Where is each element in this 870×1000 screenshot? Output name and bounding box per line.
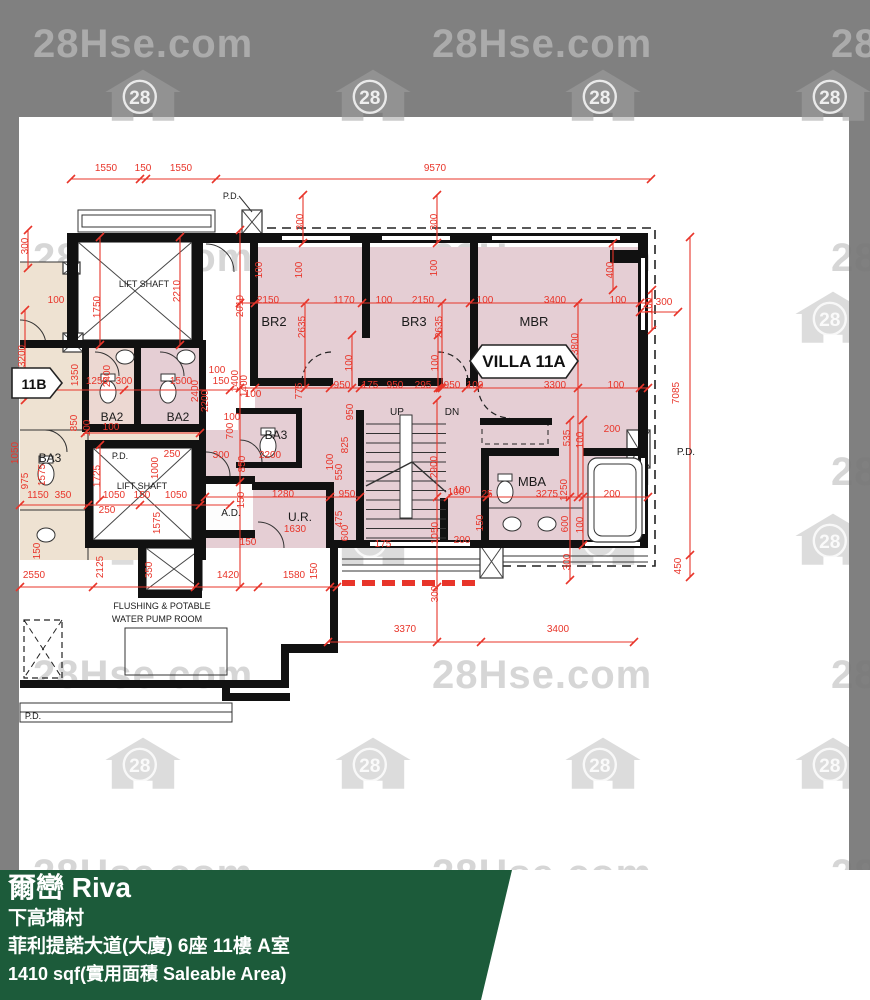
- dimension-label: 975: [20, 472, 31, 489]
- dimension-label: 550: [334, 463, 345, 480]
- dimension-label: 3370: [394, 624, 417, 635]
- dimension-label: 2550: [23, 570, 46, 581]
- dimension-label: 100: [429, 259, 440, 276]
- property-info-footer: 爾巒 Riva 下高埔村 菲利提諾大道(大廈) 6座 11樓 A室 1410 s…: [0, 870, 870, 1000]
- dimension-label: 100: [575, 516, 586, 533]
- room-label: UP: [390, 407, 404, 418]
- dimension-label: 3200: [17, 344, 28, 367]
- dimension-label: 100: [209, 365, 226, 376]
- district-name: 下高埔村: [8, 905, 290, 932]
- dimension-label: 1550: [95, 163, 118, 174]
- dimension-label: 1550: [170, 163, 193, 174]
- room-label: P.D.: [25, 711, 41, 721]
- dimension-label: 450: [673, 557, 684, 574]
- dimension-label: 300: [20, 237, 31, 254]
- room-label: WATER PUMP ROOM: [112, 614, 202, 624]
- dimension-label: 1050: [103, 490, 126, 501]
- dimension-label: 300: [295, 213, 306, 230]
- dimension-label: 3400: [544, 295, 567, 306]
- dimension-label: 100: [224, 412, 241, 423]
- dimension-label: 850: [237, 455, 248, 472]
- dimension-label: 300: [430, 585, 441, 602]
- dimension-label: 250: [99, 505, 116, 516]
- dimension-label: 300: [116, 376, 133, 387]
- dimension-label: 950: [387, 380, 404, 391]
- dimension-label: 300: [429, 213, 440, 230]
- dimension-label: 535: [562, 429, 573, 446]
- dimension-label: 400: [605, 261, 616, 278]
- dimension-label: 200: [454, 535, 471, 546]
- dimension-label: 100: [575, 431, 586, 448]
- room-label: MBA: [518, 474, 547, 489]
- room-label: P.D.: [112, 451, 128, 461]
- dimension-label: 150: [213, 376, 230, 387]
- dimension-label: 1050: [10, 441, 21, 464]
- dimension-label: 1420: [217, 570, 240, 581]
- dimension-label: 950: [339, 489, 356, 500]
- dimension-label: 1250: [559, 478, 570, 501]
- dimension-label: 700: [225, 422, 236, 439]
- dimension-label: 1150: [27, 490, 49, 501]
- room-label: BA3: [39, 451, 62, 465]
- dimension-label: 1000: [150, 456, 161, 479]
- dimension-label: 2010: [235, 294, 246, 317]
- dimension-label: 175: [362, 380, 379, 391]
- dimension-label: 9570: [424, 163, 447, 174]
- footer-text-block: 爾巒 Riva 下高埔村 菲利提諾大道(大廈) 6座 11樓 A室 1410 s…: [8, 871, 290, 987]
- dimension-label: 2125: [95, 555, 106, 578]
- dimension-label: 1350: [70, 363, 81, 386]
- dimension-label: 950: [334, 380, 351, 391]
- room-label: P.D.: [677, 447, 695, 458]
- dimension-label: 150: [134, 490, 151, 501]
- dimension-label: 3275: [536, 489, 559, 500]
- dimension-label: 7085: [671, 381, 682, 404]
- room-label: MBR: [520, 314, 549, 329]
- dimension-label: 150: [240, 537, 257, 548]
- dimension-label: 150: [135, 163, 152, 174]
- dimension-label: 100: [610, 295, 627, 306]
- dimension-label: 100: [644, 297, 655, 314]
- address-line: 菲利提諾大道(大廈) 6座 11樓 A室: [8, 932, 290, 961]
- dimension-label: 200: [604, 489, 621, 500]
- dimension-label: 25: [481, 489, 493, 500]
- dimension-label: 1250: [86, 376, 109, 387]
- room-label: FLUSHING & POTABLE: [113, 601, 210, 611]
- dimension-label: 150: [309, 562, 320, 579]
- dimension-label: 2635: [434, 315, 445, 338]
- dimension-label: 100: [454, 485, 471, 496]
- floor-plan-page: 28Hse.com28Hse.com28Hse.com28Hse.com28Hs…: [0, 0, 870, 1000]
- dimension-label: 100: [344, 354, 355, 371]
- dimension-label: 1580: [283, 570, 306, 581]
- dimension-label: 250: [164, 449, 181, 460]
- dimension-label: 1170: [333, 295, 355, 306]
- dimension-label: 825: [340, 436, 351, 453]
- dimension-label: 600: [340, 524, 351, 541]
- dimension-label: 1050: [430, 521, 441, 544]
- dimension-label: 350: [144, 561, 155, 578]
- room-label: DN: [445, 407, 459, 418]
- dimension-label: 100: [477, 295, 494, 306]
- dimension-label: 300: [213, 450, 230, 461]
- dimension-label: 150: [475, 514, 486, 531]
- dimension-label: 600: [560, 515, 571, 532]
- dimension-label: 100: [294, 261, 305, 278]
- dimension-label: 175: [375, 539, 392, 550]
- neighbor-banner-label: 11B: [22, 376, 47, 392]
- dimension-label: 1050: [165, 490, 188, 501]
- dimension-label: 1630: [284, 524, 307, 535]
- room-label: P.D.: [223, 191, 239, 201]
- room-label: LIFT SHAFT: [117, 481, 168, 491]
- dimension-label: 300: [656, 297, 673, 308]
- room-label: BA3: [265, 428, 288, 442]
- unit-banner-label: VILLA 11A: [482, 352, 565, 371]
- saleable-area: 1410 sqf(實用面積 Saleable Area): [8, 961, 290, 987]
- dimension-label: 150: [236, 491, 247, 508]
- dimension-label: 1575: [37, 463, 48, 486]
- room-label: BA2: [101, 410, 124, 424]
- dimension-label: 100: [376, 295, 393, 306]
- dimension-label: 2210: [172, 279, 183, 302]
- dimension-label: 1725: [92, 464, 103, 487]
- room-label: A.D.: [221, 508, 240, 519]
- dimension-label: 1400: [239, 374, 250, 397]
- dimension-label: 2200: [200, 389, 211, 412]
- dimension-label: 200: [604, 424, 621, 435]
- estate-name: 爾巒 Riva: [8, 871, 290, 905]
- dimension-label: 950: [345, 403, 356, 420]
- dimension-label: 850: [69, 414, 80, 431]
- dimension-label: 350: [55, 490, 72, 501]
- dimension-label: 150: [32, 542, 43, 559]
- dimension-label: 950: [444, 380, 461, 391]
- room-label: LIFT SHAFT: [119, 279, 170, 289]
- room-label: U.R.: [288, 510, 312, 524]
- dimension-label: 2900: [429, 455, 440, 478]
- dimension-label: 2150: [257, 295, 280, 306]
- dimension-label: 1750: [92, 295, 103, 318]
- dimension-label: 2200: [259, 450, 282, 461]
- room-label: BA2: [167, 410, 190, 424]
- floor-plan-drawing: 1550150155095703003001750221020101001001…: [0, 0, 870, 870]
- dimension-label: 2635: [297, 315, 308, 338]
- dimension-label: 1280: [272, 489, 295, 500]
- dimension-label: 3300: [544, 380, 567, 391]
- dimension-label: 3400: [547, 624, 570, 635]
- dimension-label: 100: [467, 380, 484, 391]
- dimension-label: 100: [82, 419, 93, 436]
- dimension-label: 100: [608, 380, 625, 391]
- dimension-label: 300: [562, 553, 573, 570]
- dimension-label: 1575: [152, 511, 163, 534]
- dimension-label: 100: [48, 295, 65, 306]
- dimension-label: 100: [254, 261, 265, 278]
- dimension-label: 100: [430, 354, 441, 371]
- dimension-label: 295: [415, 380, 432, 391]
- dimension-label: 2150: [412, 295, 435, 306]
- dimension-label: 775: [294, 382, 305, 399]
- room-label: BR2: [261, 314, 286, 329]
- room-label: BR3: [401, 314, 426, 329]
